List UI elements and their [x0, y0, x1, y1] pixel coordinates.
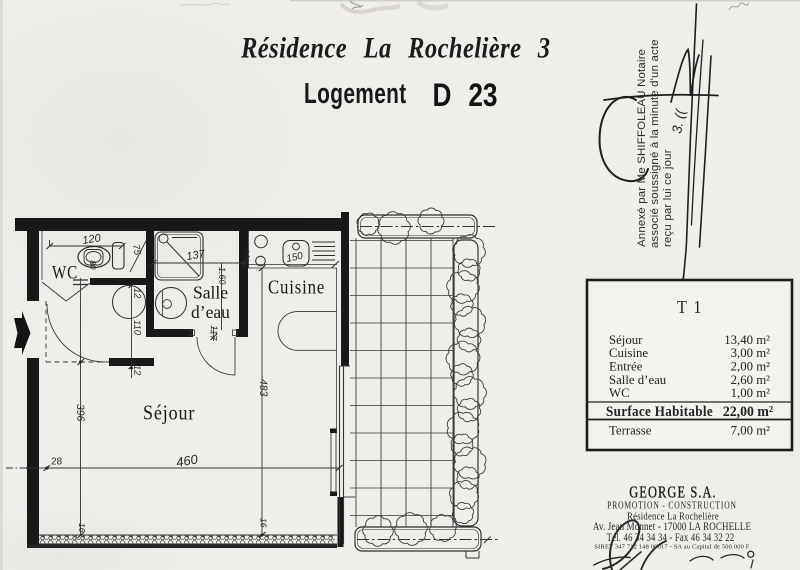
svg-text:28: 28 [51, 457, 63, 468]
svg-text:Séjour: Séjour [609, 333, 643, 347]
svg-text:Tél. 46 34 34 34 - Fax 46 34 3: Tél. 46 34 34 34 - Fax 46 34 32 22 [607, 532, 735, 544]
svg-text:117: 117 [207, 325, 219, 341]
svg-text:483: 483 [257, 379, 269, 397]
svg-text:Résidence La Rochelière 3: Résidence La Rochelière 3 [240, 31, 550, 64]
svg-text:associé soussigné à la minute: associé soussigné à la minute d'un acte [649, 39, 661, 248]
svg-text:Terrasse: Terrasse [609, 424, 652, 438]
svg-text:110: 110 [131, 320, 143, 336]
svg-text:reçu par lui ce jour: reçu par lui ce jour [662, 149, 674, 247]
svg-text:13,40 m²: 13,40 m² [724, 333, 770, 347]
svg-text:Logement: Logement [304, 78, 407, 110]
svg-text:396: 396 [74, 404, 86, 422]
svg-text:16: 16 [77, 523, 87, 533]
svg-text:Cuisine: Cuisine [268, 276, 325, 297]
svg-text:WC: WC [609, 386, 630, 400]
svg-text:Séjour: Séjour [143, 402, 195, 425]
svg-text:16: 16 [259, 518, 269, 528]
svg-text:80: 80 [88, 260, 97, 270]
svg-text:Annexé par Me SHIFFOLEAU Notai: Annexé par Me SHIFFOLEAU Notaire [636, 49, 648, 247]
svg-text:3,00 m²: 3,00 m² [731, 346, 771, 360]
svg-text:2,00 m²: 2,00 m² [731, 360, 771, 374]
svg-text:2,60 m²: 2,60 m² [731, 373, 771, 387]
svg-text:7,00 m²: 7,00 m² [731, 424, 771, 438]
svg-text:Salle d’eau: Salle d’eau [609, 373, 667, 387]
svg-text:T 1: T 1 [677, 297, 703, 317]
svg-text:22,00 m²: 22,00 m² [723, 404, 773, 421]
svg-text:d’eau: d’eau [191, 302, 230, 322]
svg-text:WC: WC [52, 262, 78, 283]
svg-text:GEORGE S.A.: GEORGE S.A. [629, 484, 717, 502]
svg-text:Salle: Salle [193, 283, 228, 303]
svg-text:Surface Habitable: Surface Habitable [606, 403, 713, 420]
svg-text:12: 12 [131, 365, 142, 377]
svg-text:1,00 m²: 1,00 m² [731, 386, 771, 400]
svg-text:Entrée: Entrée [609, 360, 643, 374]
svg-text:SIRET 347 712 148 00017 - SA a: SIRET 347 712 148 00017 - SA au Capital … [594, 544, 749, 551]
svg-text:12: 12 [131, 288, 142, 300]
svg-text:Cuisine: Cuisine [609, 346, 648, 360]
